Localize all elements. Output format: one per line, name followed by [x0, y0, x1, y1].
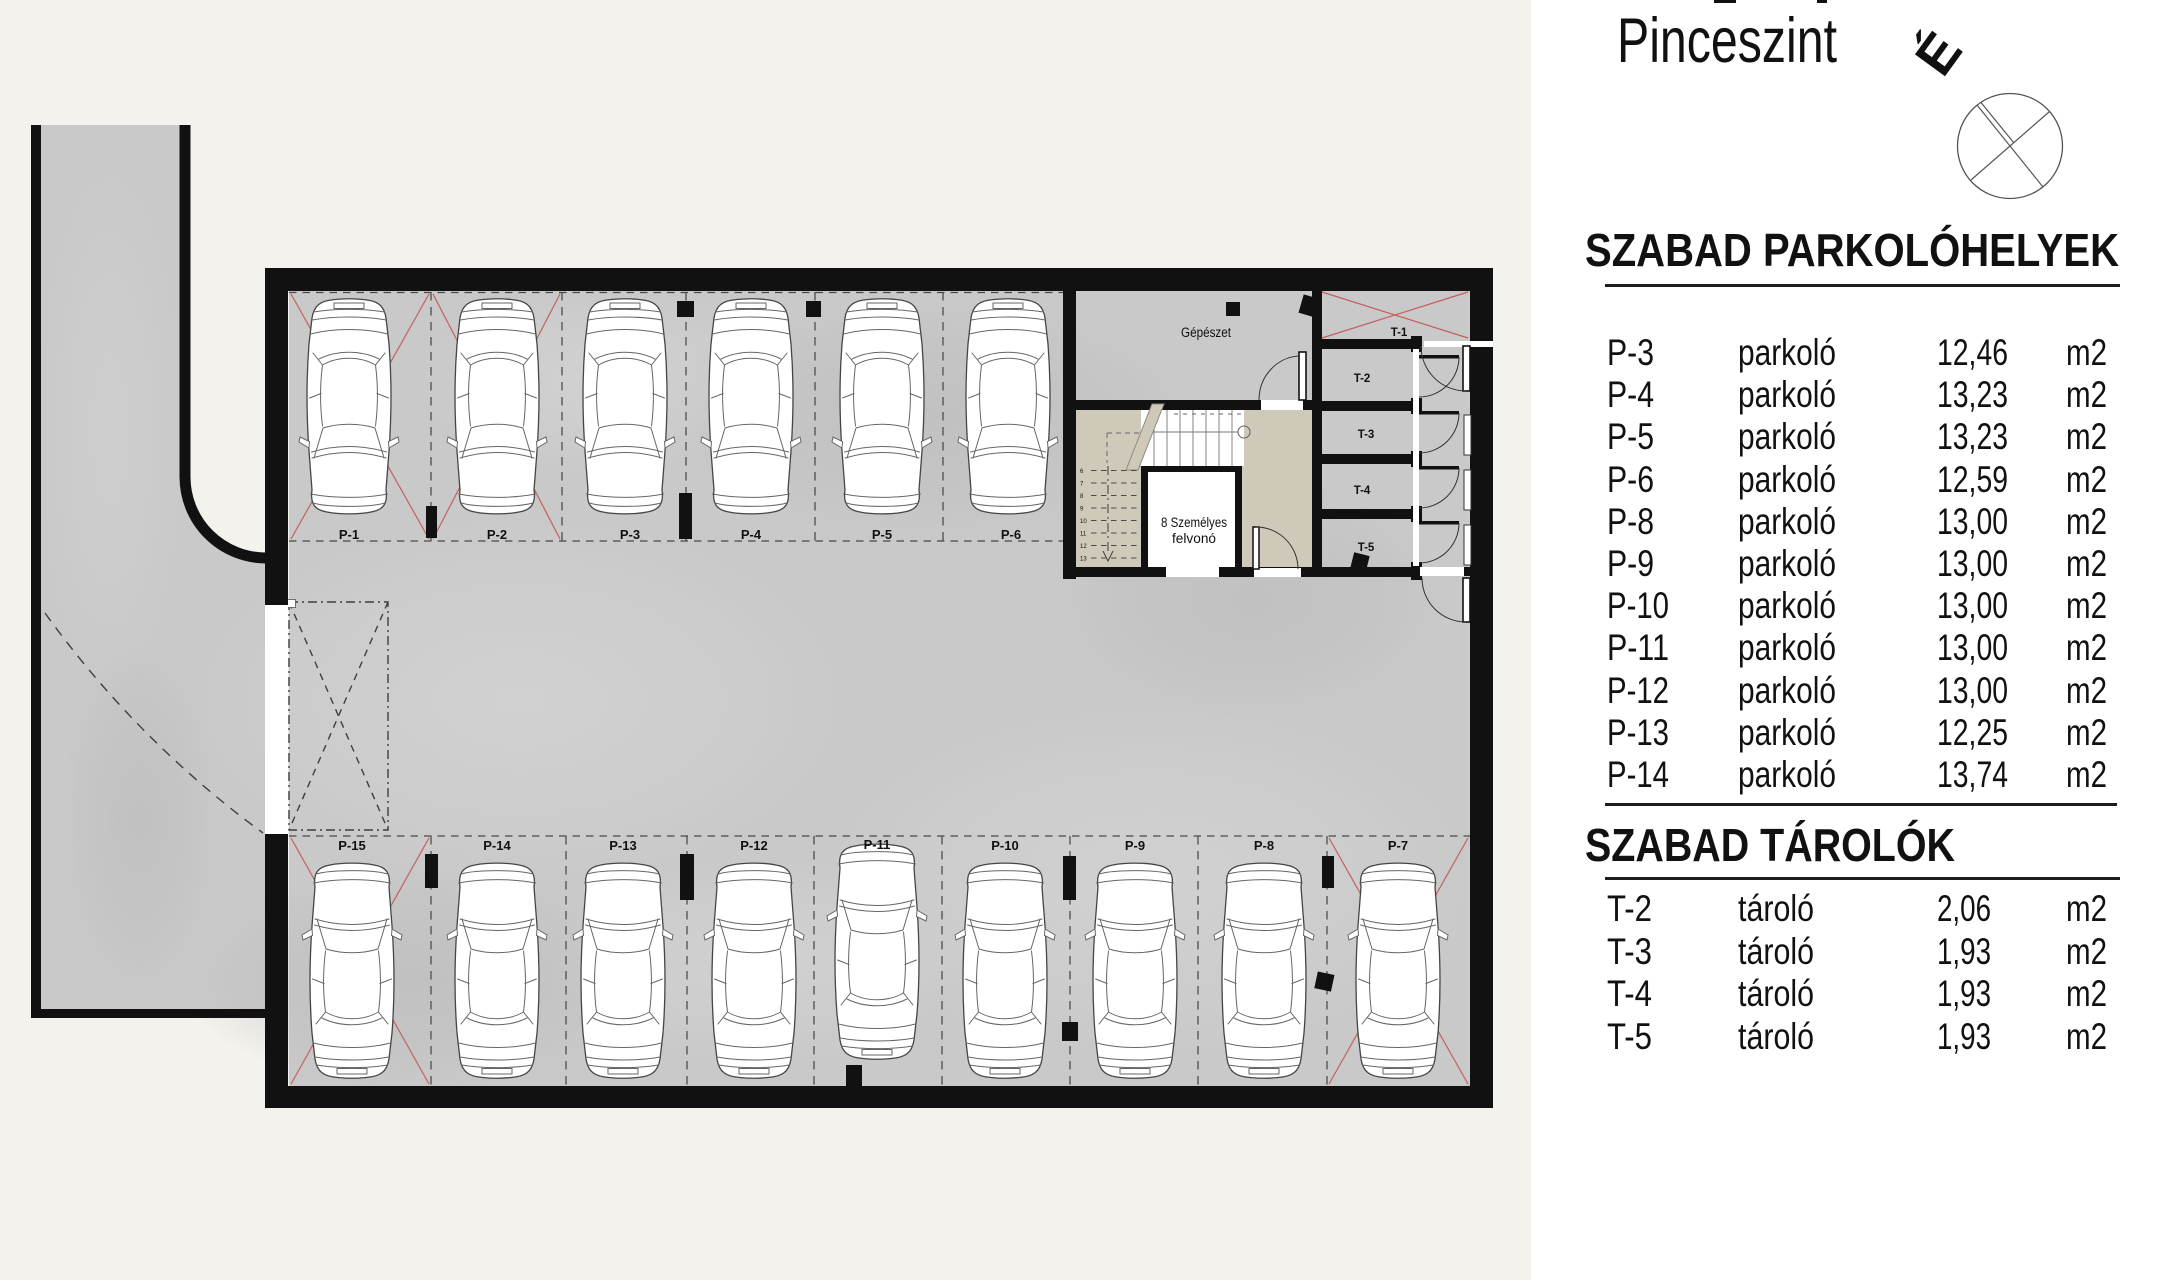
svg-text:m2: m2: [2066, 931, 2107, 972]
svg-text:P-1: P-1: [339, 527, 359, 542]
svg-text:13,00: 13,00: [1937, 543, 2008, 584]
svg-text:P-13: P-13: [609, 838, 636, 853]
svg-text:13: 13: [1080, 557, 1087, 563]
svg-text:10: 10: [1080, 519, 1087, 525]
svg-text:Pinceszint: Pinceszint: [1617, 6, 1837, 76]
svg-text:2,06: 2,06: [1937, 888, 1991, 929]
svg-text:T-3: T-3: [1358, 429, 1375, 441]
svg-text:13,23: 13,23: [1937, 374, 2008, 415]
svg-text:parkoló: parkoló: [1738, 754, 1836, 795]
svg-text:SZABAD PARKOLÓHELYEK: SZABAD PARKOLÓHELYEK: [1585, 224, 2119, 276]
svg-text:m2: m2: [2066, 754, 2107, 795]
svg-text:P-9: P-9: [1607, 543, 1654, 584]
svg-text:m2: m2: [2066, 627, 2107, 668]
svg-text:tároló: tároló: [1738, 931, 1814, 972]
svg-text:m2: m2: [2066, 585, 2107, 626]
svg-text:P-14: P-14: [483, 838, 511, 853]
svg-text:13,23: 13,23: [1937, 416, 2008, 457]
svg-text:T-3: T-3: [1607, 931, 1652, 972]
svg-text:parkoló: parkoló: [1738, 459, 1836, 500]
svg-text:P-14: P-14: [1607, 754, 1669, 795]
svg-text:13,00: 13,00: [1937, 627, 2008, 668]
svg-text:parkoló: parkoló: [1738, 543, 1836, 584]
svg-text:m2: m2: [2066, 416, 2107, 457]
svg-text:T-1: T-1: [1391, 327, 1408, 339]
svg-text:13,74: 13,74: [1937, 754, 2008, 795]
svg-text:13,00: 13,00: [1937, 501, 2008, 542]
svg-text:T-4: T-4: [1354, 485, 1371, 497]
svg-text:parkoló: parkoló: [1738, 374, 1836, 415]
svg-text:felvonó: felvonó: [1172, 531, 1216, 546]
svg-text:parkoló: parkoló: [1738, 670, 1836, 711]
svg-text:P-2: P-2: [487, 527, 507, 542]
svg-text:P-13: P-13: [1607, 712, 1669, 753]
svg-text:P-15: P-15: [338, 838, 365, 853]
svg-text:P-7: P-7: [1388, 838, 1408, 853]
svg-text:m2: m2: [2066, 501, 2107, 542]
svg-text:m2: m2: [2066, 973, 2107, 1014]
svg-text:SZABAD TÁROLÓK: SZABAD TÁROLÓK: [1585, 819, 1955, 871]
svg-text:P-6: P-6: [1001, 527, 1021, 542]
svg-text:m2: m2: [2066, 712, 2107, 753]
svg-text:parkoló: parkoló: [1738, 332, 1836, 373]
svg-text:parkoló: parkoló: [1738, 501, 1836, 542]
svg-text:P-9: P-9: [1125, 838, 1145, 853]
svg-text:13,00: 13,00: [1937, 670, 2008, 711]
svg-text:T-2: T-2: [1607, 888, 1652, 929]
svg-text:m2: m2: [2066, 374, 2107, 415]
svg-text:12: 12: [1080, 544, 1087, 550]
svg-text:P-5: P-5: [872, 527, 892, 542]
svg-text:12,46: 12,46: [1937, 332, 2008, 373]
svg-text:8 Személyes: 8 Személyes: [1161, 515, 1227, 530]
svg-text:P-10: P-10: [991, 838, 1018, 853]
svg-text:12,59: 12,59: [1937, 459, 2008, 500]
svg-text:P-4: P-4: [1607, 374, 1654, 415]
svg-text:1,93: 1,93: [1937, 973, 1991, 1014]
svg-text:1,93: 1,93: [1937, 931, 1991, 972]
svg-text:parkoló: parkoló: [1738, 712, 1836, 753]
svg-text:parkoló: parkoló: [1738, 585, 1836, 626]
svg-text:1,93: 1,93: [1937, 1016, 1991, 1057]
svg-text:P-3: P-3: [620, 527, 640, 542]
svg-text:P-8: P-8: [1607, 501, 1654, 542]
svg-text:T-4: T-4: [1607, 973, 1652, 1014]
svg-text:m2: m2: [2066, 459, 2107, 500]
svg-text:11: 11: [1080, 532, 1087, 538]
svg-text:P-4: P-4: [741, 527, 762, 542]
svg-text:12,25: 12,25: [1937, 712, 2008, 753]
svg-text:m2: m2: [2066, 670, 2107, 711]
svg-text:P-12: P-12: [1607, 670, 1669, 711]
svg-text:T-5: T-5: [1358, 542, 1375, 554]
svg-text:parkoló: parkoló: [1738, 416, 1836, 457]
svg-text:T-2: T-2: [1354, 373, 1371, 385]
svg-text:P-11: P-11: [1607, 627, 1669, 668]
svg-text:tároló: tároló: [1738, 973, 1814, 1014]
svg-text:P-10: P-10: [1607, 585, 1669, 626]
svg-text:m2: m2: [2066, 888, 2107, 929]
svg-text:tároló: tároló: [1738, 1016, 1814, 1057]
svg-text:13,00: 13,00: [1937, 585, 2008, 626]
svg-text:m2: m2: [2066, 543, 2107, 584]
svg-text:P-5: P-5: [1607, 416, 1654, 457]
svg-text:P-12: P-12: [740, 838, 767, 853]
svg-text:P-8: P-8: [1254, 838, 1274, 853]
svg-text:P-11: P-11: [864, 837, 891, 852]
svg-text:P-3: P-3: [1607, 332, 1654, 373]
svg-text:T-5: T-5: [1607, 1016, 1652, 1057]
svg-text:m2: m2: [2066, 1016, 2107, 1057]
svg-text:tároló: tároló: [1738, 888, 1814, 929]
svg-text:P-6: P-6: [1607, 459, 1654, 500]
svg-text:Gépészet: Gépészet: [1181, 325, 1231, 340]
svg-text:parkoló: parkoló: [1738, 627, 1836, 668]
svg-text:m2: m2: [2066, 332, 2107, 373]
